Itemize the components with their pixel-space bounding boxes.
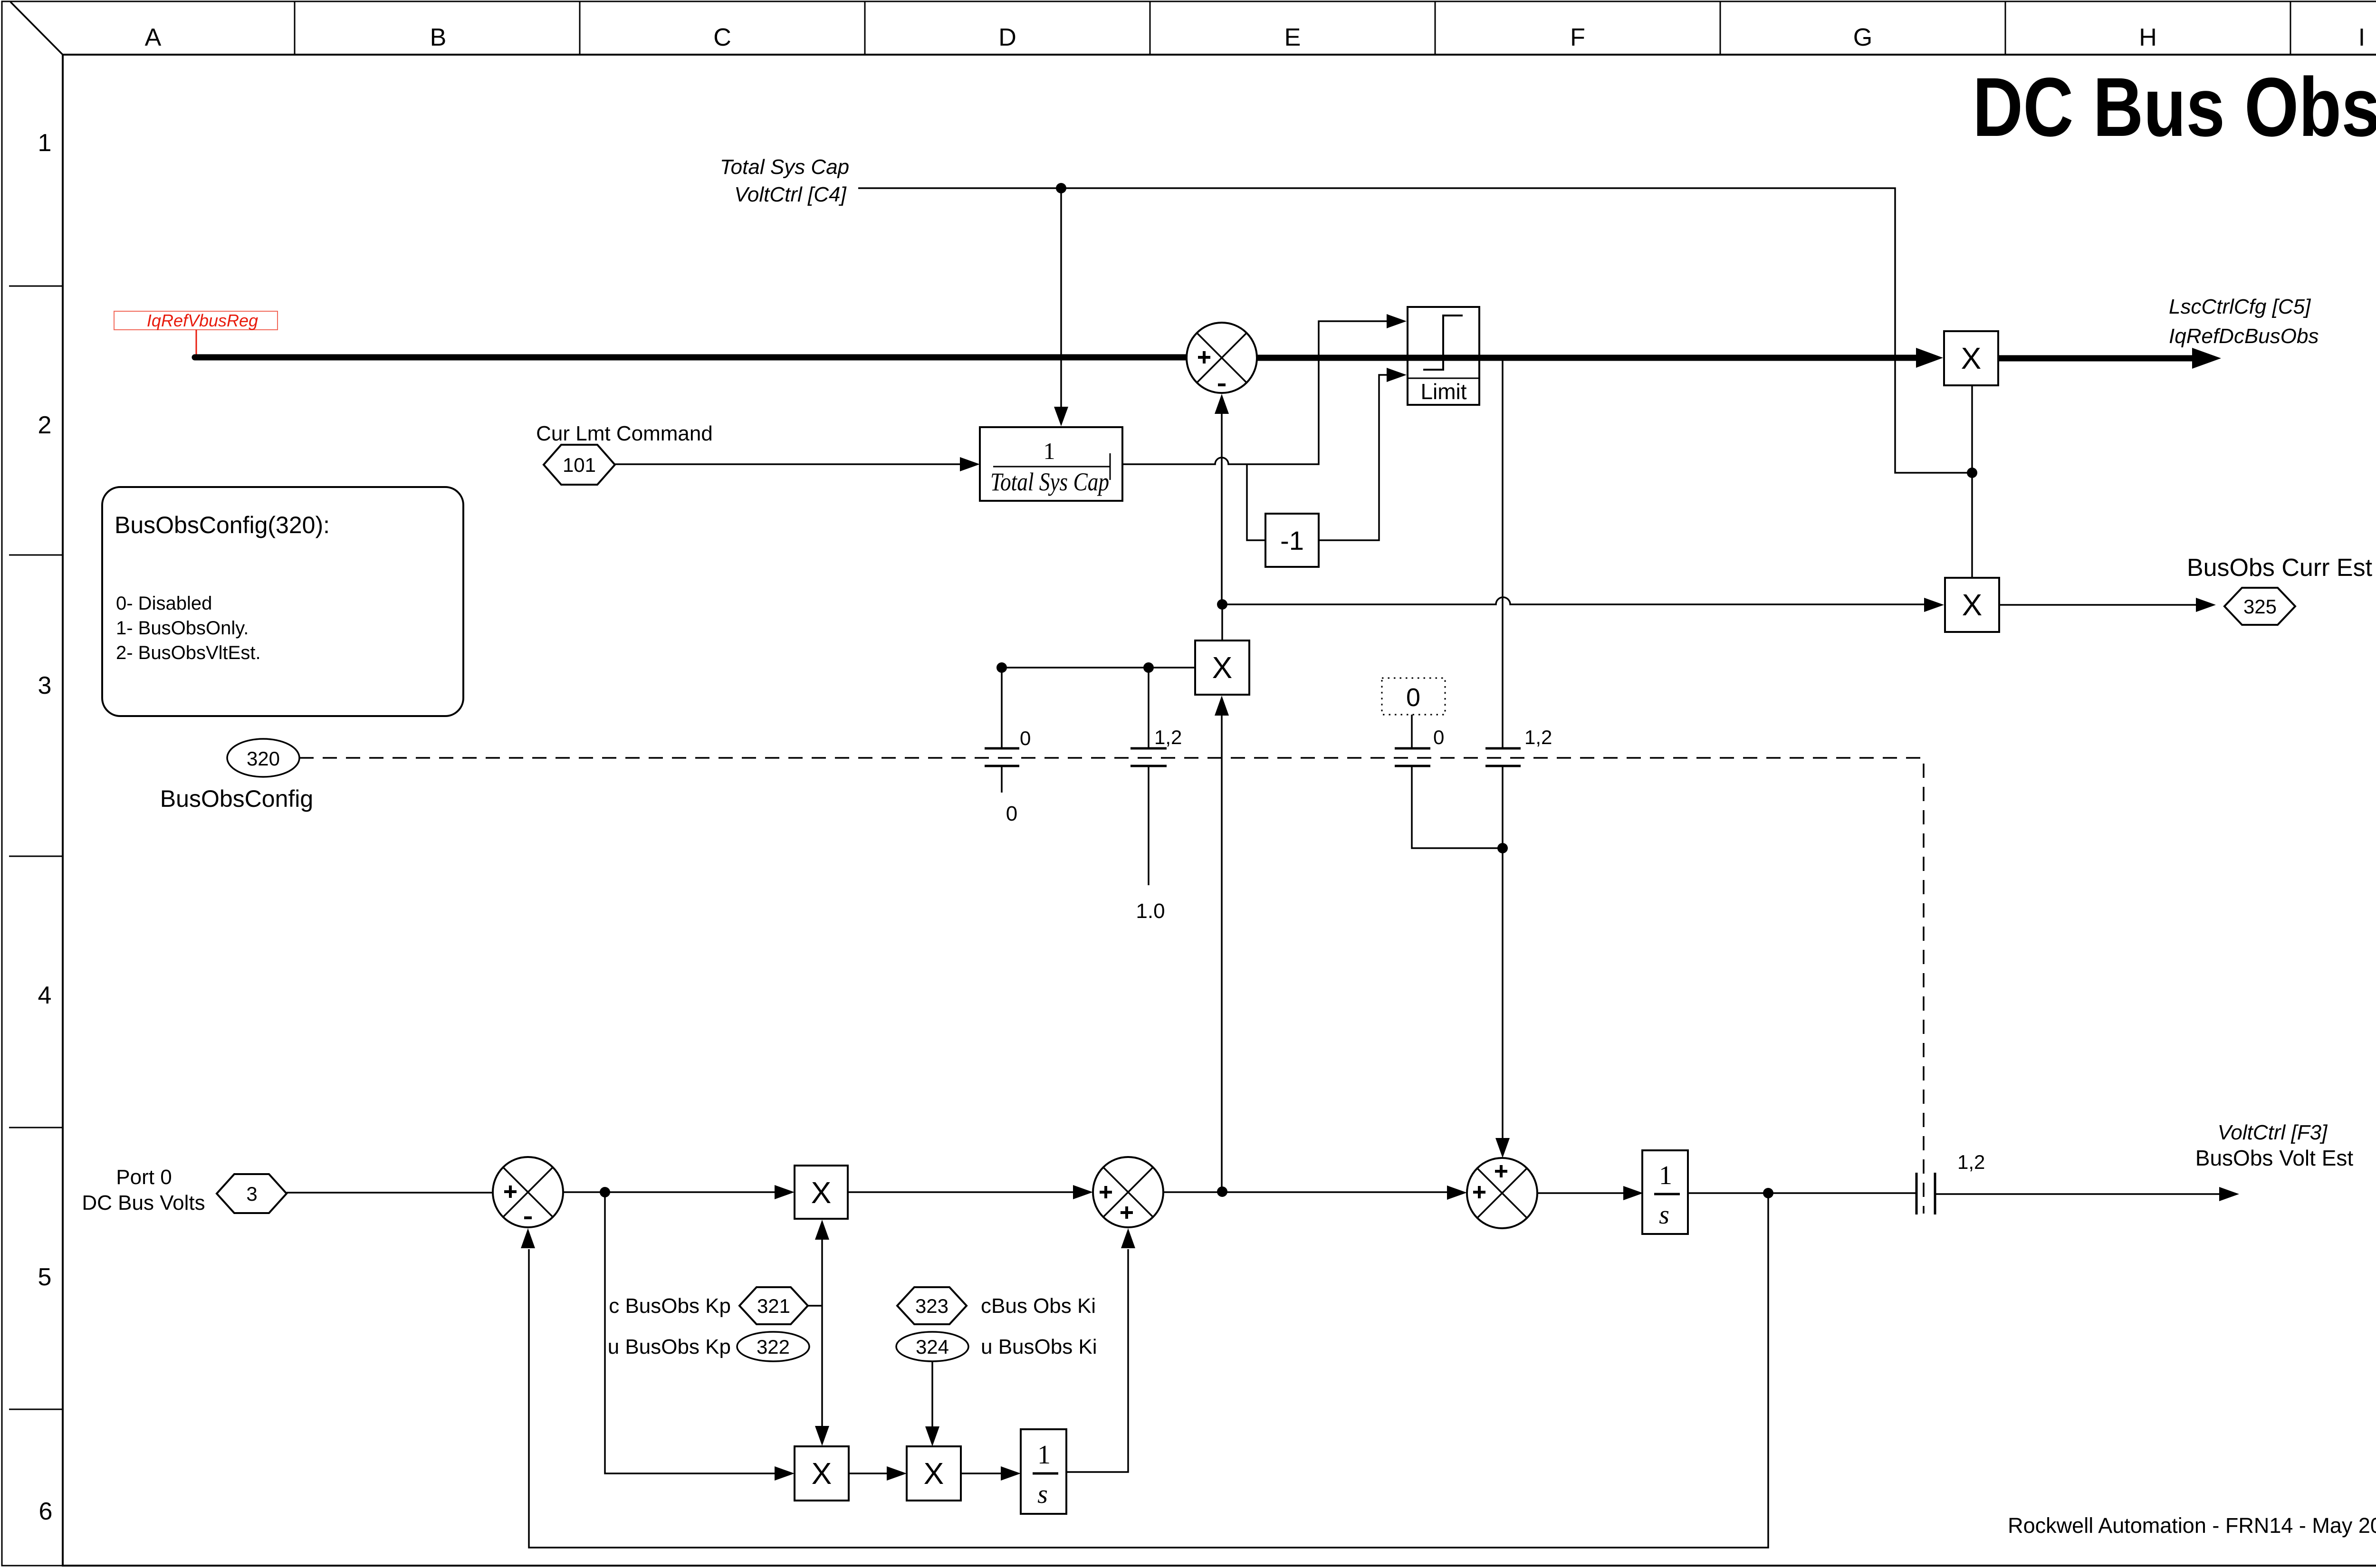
- svg-text:101: 101: [563, 454, 596, 476]
- svg-text:IqRefDcBusObs: IqRefDcBusObs: [2169, 325, 2319, 348]
- svg-text:1: 1: [1037, 1440, 1051, 1470]
- svg-text:BusObsConfig: BusObsConfig: [160, 785, 313, 812]
- svg-text:325: 325: [2243, 595, 2277, 618]
- svg-text:Limit: Limit: [1420, 379, 1466, 404]
- svg-text:321: 321: [757, 1295, 790, 1317]
- svg-text:Cur Lmt Command: Cur Lmt Command: [536, 422, 713, 445]
- svg-text:2- BusObsVltEst.: 2- BusObsVltEst.: [116, 642, 261, 663]
- svg-text:2: 2: [38, 411, 52, 439]
- svg-text:cBus Obs Ki: cBus Obs Ki: [981, 1294, 1096, 1318]
- svg-text:Total Sys Cap: Total Sys Cap: [720, 155, 849, 179]
- svg-text:C: C: [713, 24, 731, 51]
- svg-text:VoltCtrl [C4]: VoltCtrl [C4]: [734, 183, 847, 206]
- svg-text:1: 1: [1044, 438, 1055, 464]
- svg-text:322: 322: [757, 1336, 790, 1358]
- svg-text:320: 320: [247, 747, 280, 770]
- svg-text:I: I: [2358, 24, 2365, 51]
- svg-text:1.0: 1.0: [1136, 899, 1165, 923]
- svg-text:s: s: [1037, 1480, 1048, 1509]
- svg-text:VoltCtrl [F3]: VoltCtrl [F3]: [2218, 1121, 2328, 1144]
- svg-text:s: s: [1659, 1200, 1669, 1230]
- svg-text:X: X: [812, 1456, 832, 1491]
- svg-text:F: F: [1570, 24, 1585, 51]
- svg-text:u BusObs Kp: u BusObs Kp: [608, 1335, 731, 1358]
- svg-text:X: X: [924, 1456, 944, 1491]
- svg-text:u BusObs Ki: u BusObs Ki: [981, 1335, 1097, 1358]
- svg-text:-1: -1: [1280, 526, 1304, 555]
- svg-text:H: H: [2139, 24, 2157, 51]
- svg-text:6: 6: [39, 1498, 53, 1525]
- svg-text:DC Bus Obs: DC Bus Obs: [1973, 61, 2376, 154]
- svg-text:0: 0: [1020, 727, 1031, 749]
- svg-text:3: 3: [38, 672, 52, 699]
- svg-text:G: G: [1853, 24, 1872, 51]
- svg-text:c BusObs Kp: c BusObs Kp: [609, 1294, 731, 1318]
- svg-text:A: A: [145, 24, 162, 51]
- svg-text:E: E: [1284, 24, 1301, 51]
- svg-text:4: 4: [38, 982, 52, 1009]
- svg-text:BusObs Curr Est: BusObs Curr Est: [2187, 554, 2373, 582]
- svg-text:Rockwell Automation - FRN14 -: Rockwell Automation - FRN14 - May 2025: [2008, 1513, 2376, 1538]
- svg-text:X: X: [811, 1176, 832, 1210]
- svg-text:1: 1: [1659, 1161, 1672, 1190]
- svg-text:D: D: [998, 24, 1016, 51]
- svg-text:5: 5: [38, 1263, 52, 1291]
- svg-text:1,2: 1,2: [1957, 1151, 1985, 1173]
- svg-text:0: 0: [1006, 802, 1017, 825]
- svg-text:Port 0: Port 0: [116, 1166, 172, 1189]
- svg-text:0: 0: [1406, 683, 1420, 712]
- svg-text:1- BusObsOnly.: 1- BusObsOnly.: [116, 618, 249, 639]
- svg-text:BusObsConfig(320):: BusObsConfig(320):: [115, 512, 330, 538]
- svg-text:Total Sys Cap: Total Sys Cap: [990, 468, 1109, 496]
- svg-text:323: 323: [915, 1295, 948, 1317]
- svg-text:1: 1: [38, 129, 52, 157]
- svg-text:X: X: [1962, 588, 1983, 622]
- svg-text:1,2: 1,2: [1524, 726, 1552, 748]
- svg-text:1,2: 1,2: [1154, 726, 1182, 748]
- svg-text:X: X: [1212, 650, 1233, 685]
- svg-text:0: 0: [1433, 726, 1444, 748]
- svg-text:324: 324: [916, 1336, 949, 1358]
- svg-text:B: B: [430, 24, 447, 51]
- svg-text:X: X: [1961, 341, 1982, 375]
- svg-text:BusObs Volt Est: BusObs Volt Est: [2195, 1146, 2354, 1170]
- svg-text:LscCtrlCfg [C5]: LscCtrlCfg [C5]: [2169, 295, 2311, 318]
- svg-text:DC Bus Volts: DC Bus Volts: [82, 1191, 205, 1214]
- svg-text:IqRefVbusReg: IqRefVbusReg: [147, 311, 258, 330]
- svg-text:0- Disabled: 0- Disabled: [116, 593, 212, 614]
- svg-text:3: 3: [246, 1183, 257, 1205]
